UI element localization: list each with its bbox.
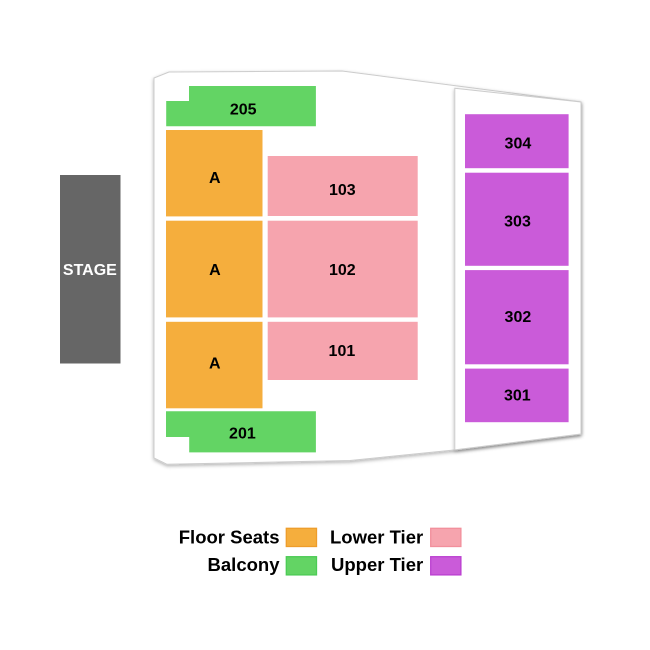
svg-text:304: 304	[505, 135, 532, 152]
svg-text:A: A	[209, 170, 221, 187]
svg-text:301: 301	[504, 388, 531, 405]
svg-text:Floor Seats: Floor Seats	[179, 527, 280, 548]
svg-text:303: 303	[504, 214, 531, 231]
svg-text:205: 205	[230, 102, 257, 119]
svg-text:Lower Tier: Lower Tier	[330, 527, 423, 548]
svg-text:201: 201	[229, 426, 256, 443]
svg-text:STAGE: STAGE	[63, 262, 117, 279]
svg-text:103: 103	[329, 182, 356, 199]
svg-text:A: A	[209, 356, 221, 373]
svg-text:Upper Tier: Upper Tier	[331, 554, 423, 575]
svg-text:102: 102	[329, 262, 356, 279]
svg-text:302: 302	[505, 309, 532, 326]
svg-text:Balcony: Balcony	[208, 554, 281, 575]
svg-text:A: A	[209, 262, 221, 279]
svg-text:101: 101	[329, 343, 356, 360]
